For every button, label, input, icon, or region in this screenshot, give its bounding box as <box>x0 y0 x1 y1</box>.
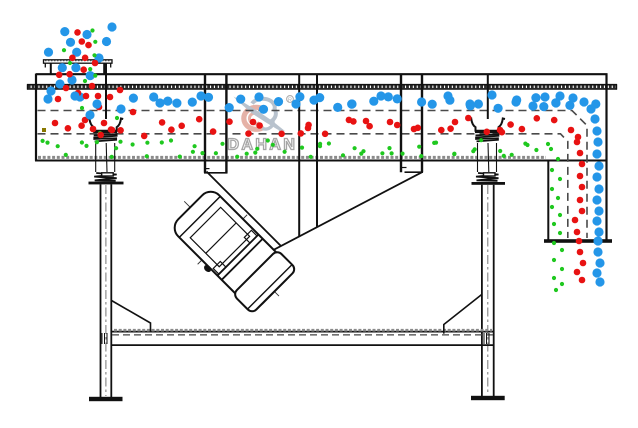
svg-text:R: R <box>288 98 292 104</box>
svg-text:DAHAN: DAHAN <box>228 136 298 153</box>
